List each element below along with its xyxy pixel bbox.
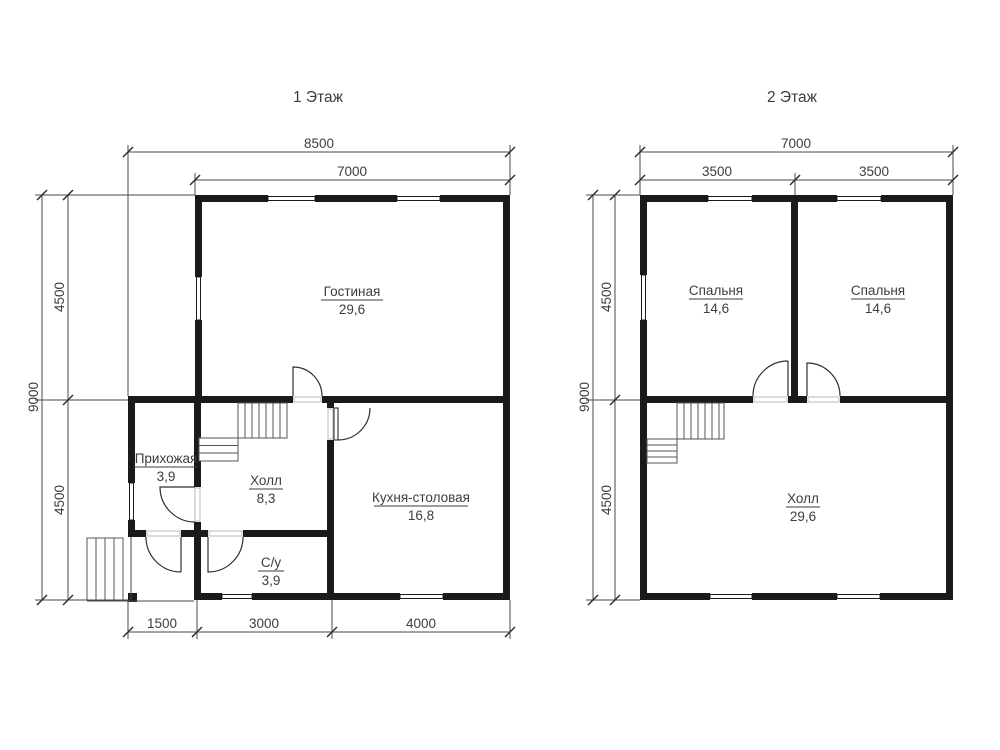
door-kitchen: [338, 408, 370, 440]
dim-4500-left: 4500 4500: [52, 190, 73, 605]
room-area: 14,6: [703, 301, 729, 316]
window: [837, 197, 881, 201]
room-area: 3,9: [157, 469, 176, 484]
dim-value: 3500: [859, 164, 889, 179]
dim-7000: 7000: [190, 164, 515, 185]
dim-value: 8500: [304, 136, 334, 151]
room-name: Спальня: [689, 283, 743, 298]
dim-value: 4500: [599, 282, 614, 312]
dim-value: 3500: [702, 164, 732, 179]
window: [837, 595, 880, 599]
room-name: Холл: [250, 473, 282, 488]
dim-8500: 8500: [123, 136, 515, 157]
door-opening: [146, 529, 181, 538]
room-name: Прихожая: [135, 451, 198, 466]
room-name: Кухня-столовая: [372, 490, 470, 505]
dim-value: 7000: [337, 164, 367, 179]
dim-value: 9000: [26, 382, 41, 412]
window: [130, 483, 134, 520]
room-name: Спальня: [851, 283, 905, 298]
room-label-kitchen: Кухня-столовая 16,8: [372, 490, 470, 523]
window: [400, 595, 443, 599]
door-opening: [807, 395, 840, 404]
wall: [640, 396, 953, 403]
wall: [791, 195, 798, 403]
door-opening: [208, 529, 243, 538]
room-label-bedroom2: Спальня 14,6: [851, 283, 905, 316]
dim-value: 1500: [147, 616, 177, 631]
dim-value: 3000: [249, 616, 279, 631]
wall: [640, 593, 953, 600]
room-label-bedroom1: Спальня 14,6: [689, 283, 743, 316]
door-bedroom2: [807, 363, 840, 396]
room-area: 3,9: [262, 573, 281, 588]
door-opening: [293, 395, 322, 404]
room-area: 29,6: [790, 509, 816, 524]
dim-value: 4500: [52, 282, 67, 312]
floor1-title: 1 Этаж: [293, 89, 344, 106]
room-label-living: Гостиная 29,6: [321, 284, 383, 317]
door-leaf-kitchen: [334, 408, 338, 440]
wall: [195, 195, 510, 202]
door-entry: [146, 537, 181, 572]
dim-4500-f2: 4500 4500: [599, 190, 620, 605]
dim-bottom: 1500 3000 4000: [123, 616, 515, 637]
floor1-porch: [87, 537, 194, 601]
floor1-room-labels: Гостиная 29,6 Прихожая 3,9 Холл 8,3 С/у …: [134, 284, 470, 588]
room-name: Гостиная: [324, 284, 381, 299]
door-bedroom1: [753, 361, 788, 396]
room-area: 29,6: [339, 302, 365, 317]
window: [197, 277, 201, 320]
door-living: [293, 367, 322, 396]
dim-value: 7000: [781, 136, 811, 151]
floor2-plan: 2 Этаж: [577, 89, 958, 605]
floor2-walls: [640, 195, 953, 600]
window: [642, 275, 646, 320]
window: [268, 197, 315, 201]
room-area: 8,3: [257, 491, 276, 506]
room-label-hallway: Прихожая 3,9: [134, 451, 198, 484]
room-label-hall2: Холл 29,6: [786, 491, 820, 524]
window: [708, 197, 752, 201]
dim-9000-f2: 9000: [577, 190, 598, 605]
stairs-landing: [199, 438, 238, 461]
window: [397, 197, 440, 201]
window: [222, 595, 252, 599]
window: [710, 595, 752, 599]
door-bathroom: [208, 537, 243, 572]
floor1-stairs: [199, 403, 287, 461]
dim-value: 4500: [599, 485, 614, 515]
floor1-plan: 1 Этаж: [26, 89, 515, 639]
room-label-hall: Холл 8,3: [249, 473, 283, 506]
floor2-dimensions: 7000 3500 3500 9000 4500: [577, 136, 958, 605]
door-hallway: [160, 487, 195, 522]
dim-value: 4000: [406, 616, 436, 631]
floorplan-drawing: 1 Этаж: [0, 0, 1000, 750]
dim-7000-f2: 7000: [635, 136, 958, 157]
dim-9000-left: 9000: [26, 190, 47, 605]
floor2-stairs: [647, 403, 724, 463]
floorplan-page: 1 Этаж: [0, 0, 1000, 750]
door-opening: [753, 395, 788, 404]
room-label-bathroom: С/у 3,9: [258, 555, 284, 588]
room-name: С/у: [261, 555, 282, 570]
room-area: 14,6: [865, 301, 891, 316]
dim-value: 4500: [52, 485, 67, 515]
room-name: Холл: [787, 491, 819, 506]
dim-value: 9000: [577, 382, 592, 412]
room-area: 16,8: [408, 508, 434, 523]
dim-3500-pair: 3500 3500: [635, 164, 958, 185]
floor2-title: 2 Этаж: [767, 89, 818, 106]
